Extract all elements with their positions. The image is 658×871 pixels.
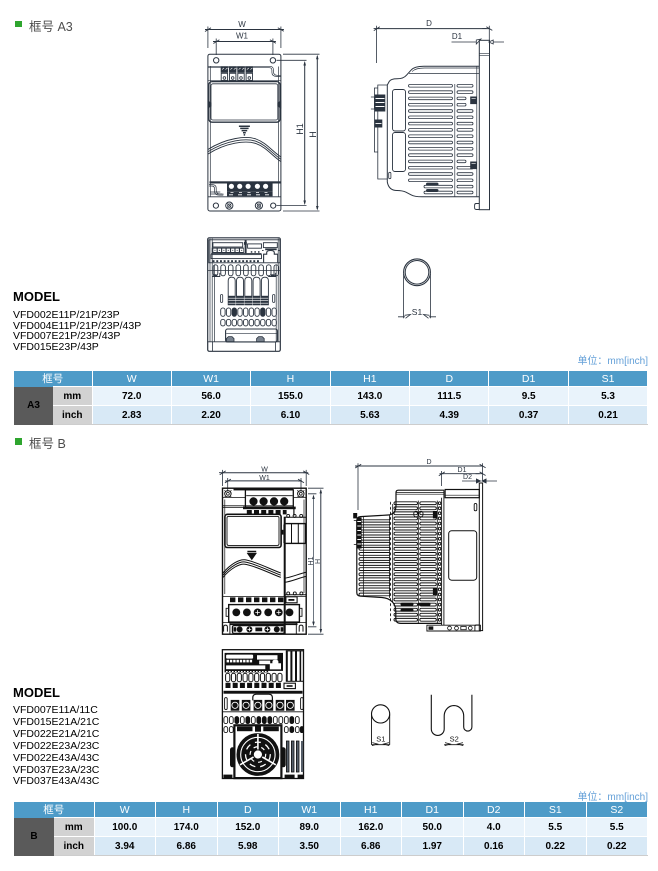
svg-text:W: W [238, 20, 246, 29]
svg-text:D: D [426, 459, 431, 466]
svg-text:W1: W1 [236, 32, 249, 41]
svg-text:D2: D2 [463, 474, 472, 481]
svg-text:D1: D1 [458, 467, 467, 474]
svg-text:D1: D1 [452, 32, 463, 41]
svg-text:W: W [261, 467, 268, 474]
svg-text:D: D [426, 19, 432, 28]
svg-text:H1: H1 [308, 556, 315, 565]
svg-text:H: H [308, 131, 318, 138]
svg-text:H1: H1 [295, 123, 305, 135]
svg-text:S2: S2 [450, 735, 459, 744]
svg-text:H: H [315, 559, 322, 564]
svg-text:S1: S1 [376, 735, 385, 744]
svg-text:W1: W1 [259, 475, 270, 482]
svg-text:S1: S1 [412, 307, 423, 317]
